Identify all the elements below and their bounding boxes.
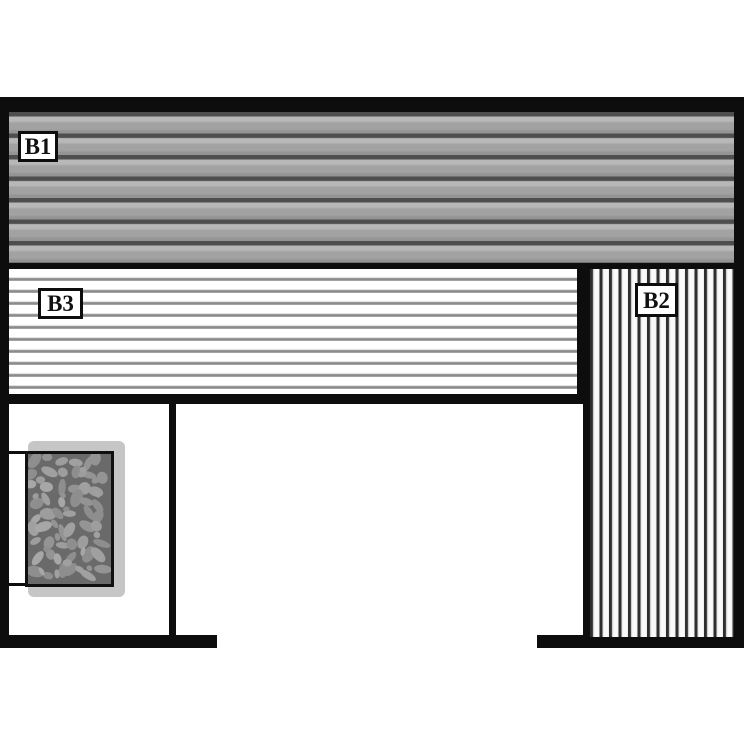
heater-connector-bottom bbox=[9, 583, 25, 586]
heater-stones-svg bbox=[28, 454, 111, 584]
wall-bottom-left bbox=[0, 635, 217, 648]
heater-room-wall bbox=[169, 398, 176, 648]
wall-right bbox=[734, 97, 744, 648]
bench-b3 bbox=[9, 269, 585, 404]
bench-b1-label-text: B1 bbox=[25, 135, 52, 158]
bench-b3-label-text: B3 bbox=[47, 292, 74, 315]
bench-b2 bbox=[583, 269, 734, 637]
bench-b1 bbox=[9, 112, 734, 269]
bench-b2-label: B2 bbox=[635, 283, 678, 317]
wall-top bbox=[0, 97, 744, 112]
heater-stones bbox=[25, 451, 114, 587]
floor-plan: B1 B3 B2 bbox=[0, 0, 754, 744]
bench-b3-label: B3 bbox=[38, 288, 83, 319]
bench-b1-label: B1 bbox=[18, 131, 58, 162]
bench-b2-label-text: B2 bbox=[643, 289, 670, 312]
heater-connector-top bbox=[9, 451, 25, 454]
wall-left bbox=[0, 97, 9, 648]
